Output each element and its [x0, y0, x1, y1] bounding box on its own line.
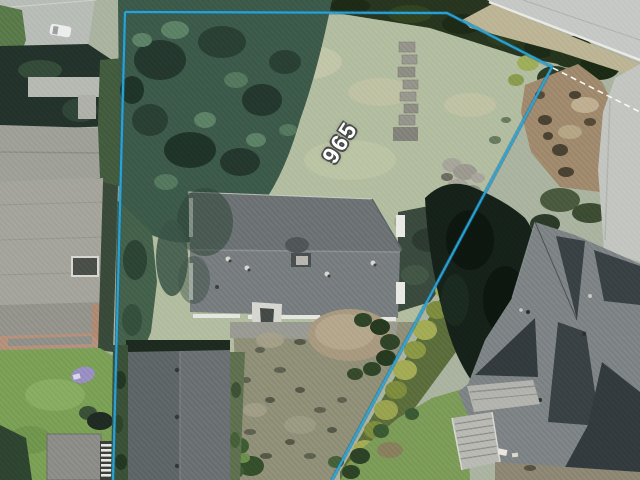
aerial-map-view[interactable]: 965 — [0, 0, 640, 480]
gutter-trim — [396, 215, 405, 237]
garage-roof — [111, 340, 245, 480]
left-neighbor-property — [0, 0, 124, 480]
flat-roof-building — [0, 125, 108, 350]
right-neighbor-dirt-yard — [521, 64, 613, 234]
aerial-imagery — [0, 0, 640, 480]
skylight — [72, 257, 98, 276]
